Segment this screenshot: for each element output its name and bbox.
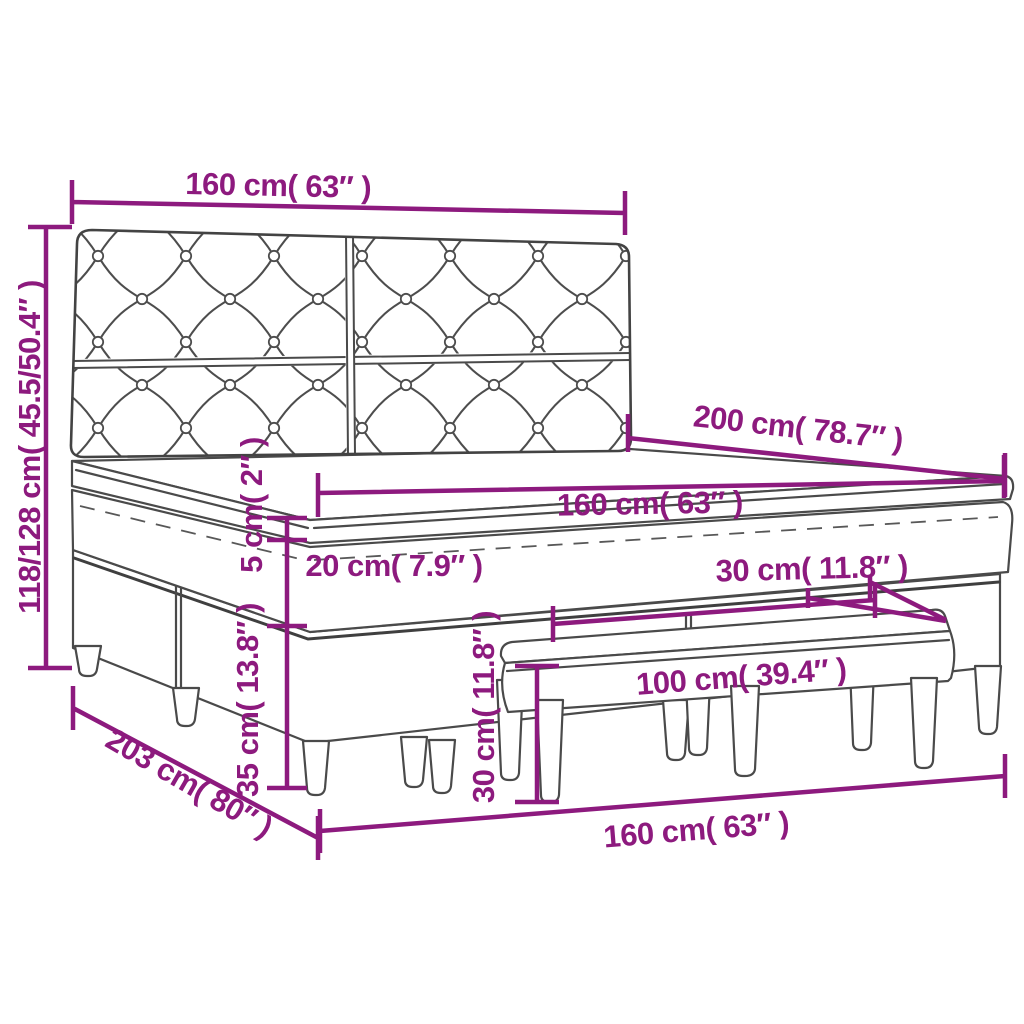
dim-headboard-height: 118/128 cm( 45.5/50.4″ )	[12, 227, 72, 668]
dim-headboard-width: 160 cm( 63″ )	[72, 166, 625, 235]
mattress-thickness-label: 20 cm( 7.9″ )	[305, 548, 482, 583]
bench	[497, 610, 954, 802]
bench-height-label: 30 cm( 11.8″ )	[466, 611, 501, 803]
diagram-canvas: 160 cm( 63″ ) 118/128 cm( 45.5/50.4″ ) 2…	[0, 0, 1024, 1024]
bed-dimension-diagram: 160 cm( 63″ ) 118/128 cm( 45.5/50.4″ ) 2…	[0, 0, 1024, 1024]
bed-drawing	[66, 225, 1013, 802]
bench-depth-label: 30 cm( 11.8″ )	[715, 548, 908, 588]
mattress-width-label: 160 cm( 63″ )	[557, 484, 743, 522]
headboard-width-label: 160 cm( 63″ )	[185, 166, 372, 205]
headboard-height-label: 118/128 cm( 45.5/50.4″ )	[12, 280, 47, 614]
topper-thickness-label: 5 cm( 2″ )	[234, 437, 269, 573]
base-leg-height-label: 35 cm( 13.8″ )	[230, 603, 265, 797]
frame-width-label: 160 cm( 63″ )	[602, 805, 790, 855]
headboard	[66, 225, 638, 463]
